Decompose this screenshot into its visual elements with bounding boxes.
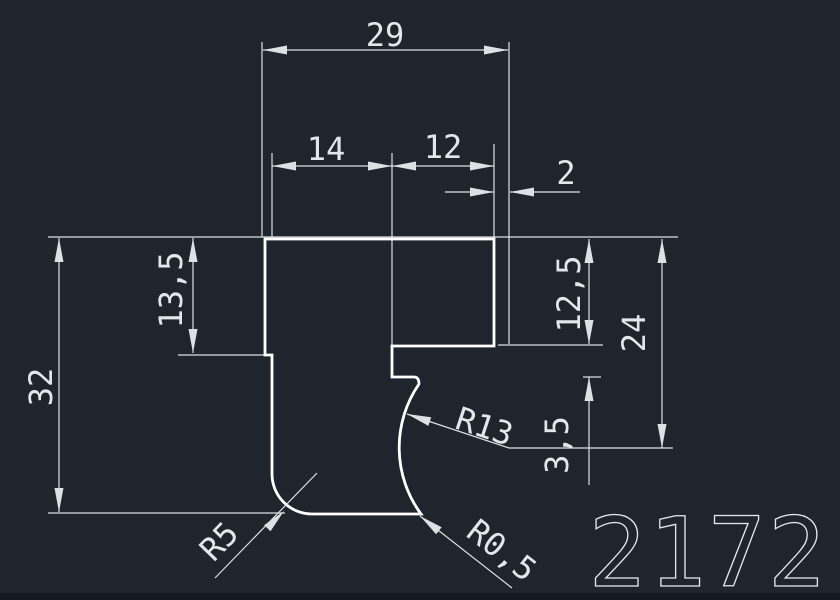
dim-label-right-flange-height: 12,5 bbox=[550, 255, 588, 332]
dim-label-lip-width: 2 bbox=[556, 154, 575, 192]
dim-label-step-gap: 3,5 bbox=[538, 416, 576, 474]
part-number: 2172 bbox=[588, 497, 827, 600]
cad-drawing: 29 14 12 2 32 13,5 12,5 bbox=[0, 0, 840, 600]
dim-label-total-width: 29 bbox=[366, 16, 405, 54]
dim-label-mid-width: 12 bbox=[424, 128, 463, 166]
dim-label-total-height: 32 bbox=[22, 368, 60, 407]
dim-label-left-step-height: 13,5 bbox=[152, 251, 190, 328]
dim-label-left-width: 14 bbox=[307, 130, 346, 168]
dim-label-right-height: 24 bbox=[615, 314, 653, 353]
